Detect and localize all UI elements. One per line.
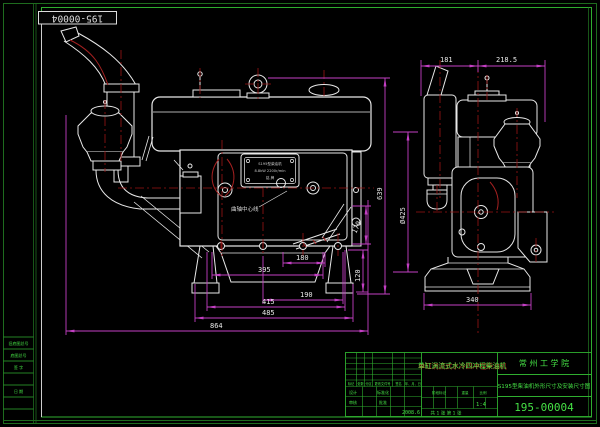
label-scale: 比例 <box>480 390 488 395</box>
nameplate-line2: 8.8kW 2200r/min <box>254 169 285 173</box>
label-check: 审核 <box>349 399 357 405</box>
margin-column: 旧底图总号 底图总号 签 字 日 期 <box>4 337 34 409</box>
label-design: 设计 <box>349 389 357 395</box>
dim-395-label: 395 <box>258 266 271 274</box>
side-view <box>424 66 547 291</box>
label-mark: 标记 <box>348 381 355 386</box>
label-change-doc: 更改文件号 <box>375 381 391 386</box>
label-sign: 签名 <box>395 381 401 386</box>
nameplate-line3: 铭 牌 <box>266 175 275 180</box>
dim-415-label: 415 <box>262 298 275 306</box>
margin-row-label: 签 字 <box>14 364 23 370</box>
dim-425-label: Ø425 <box>399 207 407 224</box>
company-name: 常 州 工 学 院 <box>519 358 569 368</box>
label-standard: 标准化 <box>377 389 389 395</box>
product-title: 单缸涡流式水冷四冲程柴油机 <box>418 361 507 370</box>
date-value: 2008.6 <box>402 410 420 416</box>
label-date-col: 年、月、日 <box>405 381 421 386</box>
margin-row-label: 日 期 <box>14 388 23 394</box>
dim-639-label: 639 <box>376 187 384 200</box>
sheet-info: 共 1 张 第 1 张 <box>431 410 462 417</box>
cad-canvas: 旧底图总号 底图总号 签 字 日 期 195-00004 <box>0 0 600 427</box>
label-count: 处数 <box>357 381 364 386</box>
label-zone: 分区 <box>365 381 372 386</box>
corner-stamp: 195-00004 <box>39 12 117 25</box>
dim-485-label: 485 <box>262 309 275 317</box>
scale-value: 1:4 <box>476 402 487 408</box>
title-block: 单缸涡流式水冷四冲程柴油机 单缸涡流式水冷四冲程柴油机 常 州 工 学 院 S1… <box>346 353 592 417</box>
nameplate-line1: S195型柴油机 <box>258 161 282 166</box>
dim-120-label: 120 <box>354 269 362 282</box>
margin-row-label: 旧底图总号 <box>9 340 29 346</box>
dim-218-label: 218.5 <box>496 56 517 64</box>
dim-180-label: 180 <box>296 254 309 262</box>
corner-stamp-number: 195-00004 <box>51 13 103 24</box>
label-approve: 批准 <box>379 399 387 405</box>
drawing-title: S195型柴油机外形尺寸及安装尺寸图 <box>498 382 591 390</box>
dim-181-label: 181 <box>440 56 453 64</box>
crank-centerline-note: 曲轴中心线 <box>231 205 259 213</box>
cad-drawing-sheet: 旧底图总号 底图总号 签 字 日 期 195-00004 <box>0 0 600 427</box>
dim-864-label: 864 <box>210 322 223 330</box>
engine-nameplate: S195型柴油机 8.8kW 2200r/min 铭 牌 <box>241 154 299 187</box>
margin-row-label: 底图总号 <box>11 352 27 358</box>
drawing-number: 195-00004 <box>514 401 574 414</box>
dim-340-label: 340 <box>466 296 479 304</box>
dim-190-label: 190 <box>300 291 313 299</box>
label-weight: 重量 <box>462 390 470 395</box>
label-stage: 阶段标记 <box>432 390 446 395</box>
front-view: S195型柴油机 8.8kW 2200r/min 铭 牌 <box>61 27 371 293</box>
